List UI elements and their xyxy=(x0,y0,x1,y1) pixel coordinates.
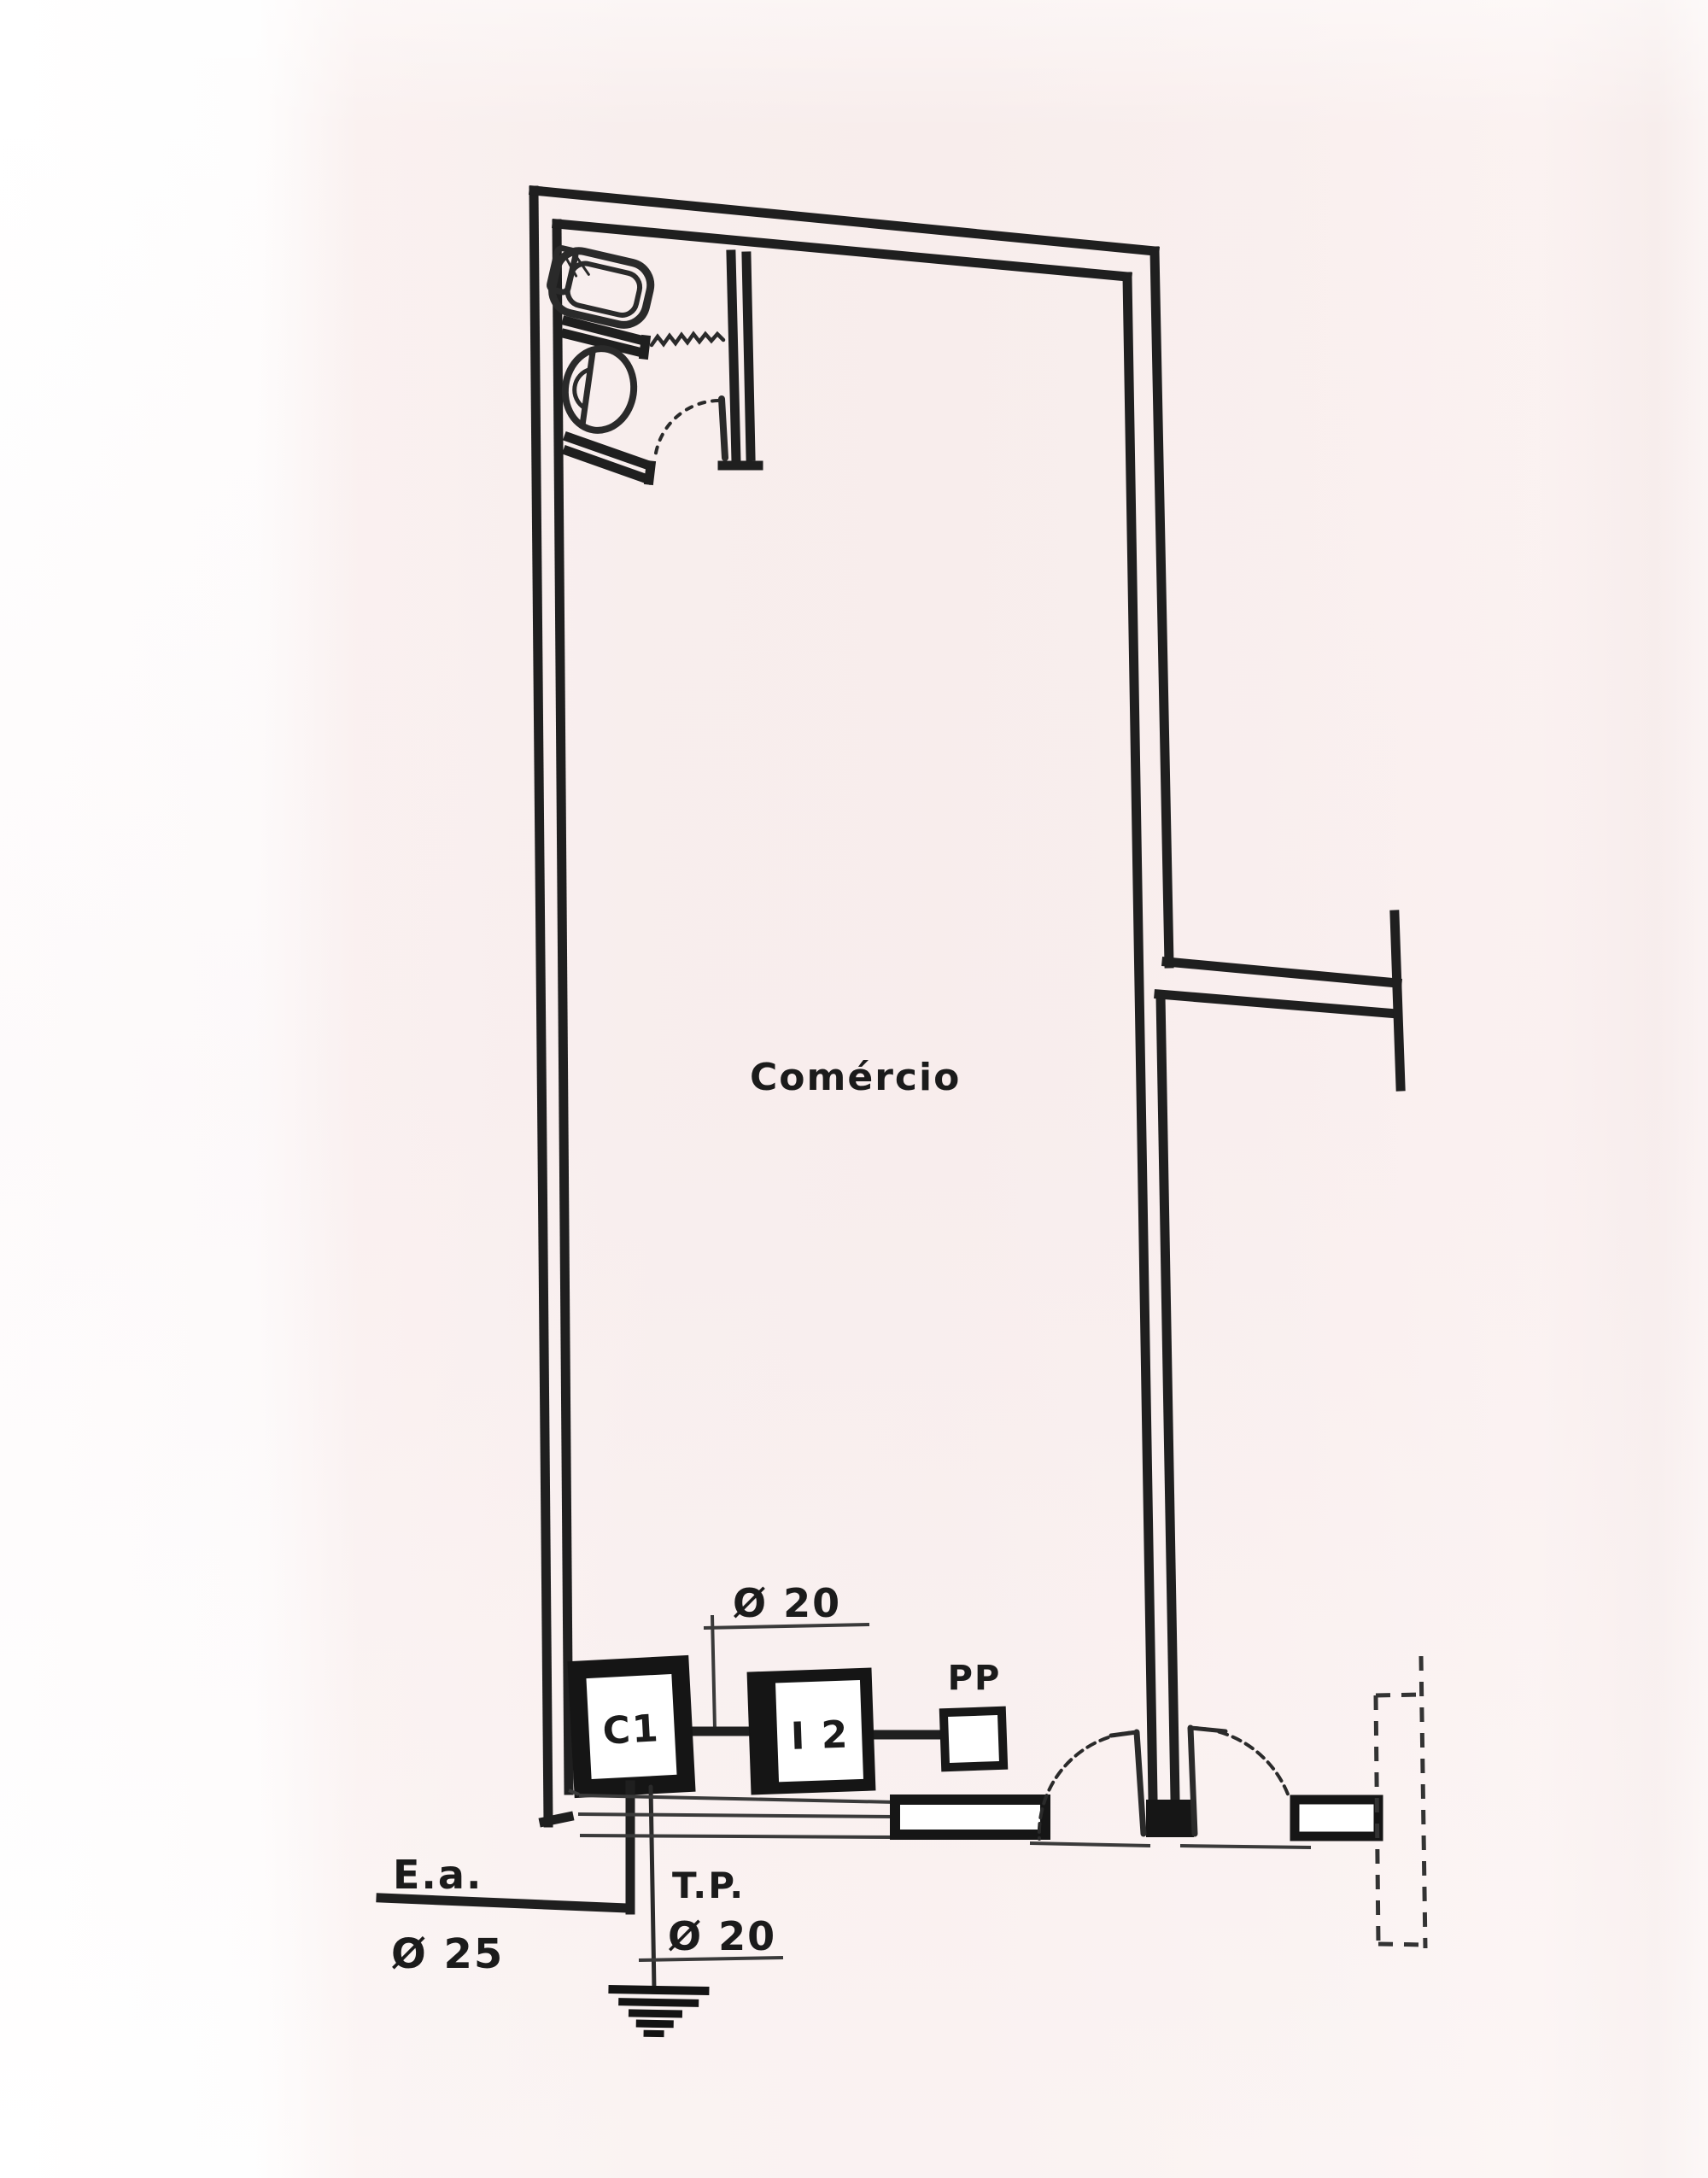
outlet-box-pp-outline xyxy=(944,1711,1003,1767)
right-wall-outer-line-upper xyxy=(1155,251,1169,963)
bathroom-door-leaf xyxy=(722,399,725,458)
right-wall-inner-line xyxy=(1127,277,1153,1799)
entry-door-left xyxy=(1039,1732,1144,1839)
shower-curtain-zigzag xyxy=(652,334,723,345)
toilet xyxy=(560,344,640,435)
right-stub-end-cap xyxy=(1395,915,1401,1086)
center-door-pier xyxy=(1146,1800,1194,1837)
threshold-line-left xyxy=(1030,1843,1150,1846)
left-wall-inner-line xyxy=(557,224,569,1790)
ground-diameter-underline xyxy=(639,1958,783,1960)
toilet-bowl xyxy=(560,344,640,435)
bathroom xyxy=(544,246,758,480)
storefront-glazing-line-3 xyxy=(580,1835,895,1837)
threshold-line-right xyxy=(1180,1846,1311,1847)
entry-door-left-leaf xyxy=(1137,1732,1144,1834)
outlet-box-pp xyxy=(944,1711,1003,1767)
room-label: Comércio xyxy=(750,1056,961,1099)
ground-bar-3 xyxy=(629,2009,682,2017)
outlet-box-pp-label: PP xyxy=(948,1659,1002,1698)
bathroom-right-wall-line-b xyxy=(746,256,751,456)
meter-box-i2-thick-band xyxy=(748,1672,780,1794)
conduit-diameter-label-top: Ø 20 xyxy=(733,1580,841,1626)
entry-door-left-swing-arc xyxy=(1039,1732,1137,1839)
ground-bar-5 xyxy=(643,2030,664,2037)
tub-partition-end-cap xyxy=(644,340,646,354)
entry-door-right xyxy=(1190,1728,1290,1834)
meter-box-i2: I 2 xyxy=(748,1669,870,1795)
right-wall-outer-line-lower xyxy=(1161,996,1175,1799)
toilet-tank-line xyxy=(582,352,593,424)
left-wall-bottom-cap xyxy=(544,1817,569,1822)
left-wall-outer-line xyxy=(534,190,548,1823)
bathtub-basin xyxy=(564,261,642,318)
dashed-outline-top-edge xyxy=(1376,1695,1422,1695)
panel-box-c1-label: C1 xyxy=(601,1707,660,1753)
bathroom-bottom-wall-end-cap xyxy=(649,465,651,480)
ground-bar-2 xyxy=(618,1998,699,2007)
bathroom-door-swing-arc xyxy=(655,401,718,459)
dashed-outline-bottom-edge xyxy=(1378,1944,1427,1945)
dashed-outline-right-edge xyxy=(1421,1656,1425,1948)
entry-door-right-leaf xyxy=(1190,1728,1195,1834)
dimension-leader-line xyxy=(712,1615,715,1729)
service-entrance-diameter-label: Ø 25 xyxy=(391,1930,504,1978)
display-counter-right xyxy=(1295,1800,1378,1836)
bathroom-right-wall-line-a xyxy=(731,255,736,461)
top-wall-outer-line xyxy=(534,190,1155,251)
right-stub-wall-top xyxy=(1167,962,1397,983)
panel-box-c1: C1 xyxy=(576,1665,686,1789)
ground-diameter-label: Ø 20 xyxy=(668,1913,776,1959)
ground-bar-4 xyxy=(636,2020,674,2029)
scanned-floor-plan-page: Comércio Ø 20 C1 I 2 PP E.a. Ø 25 xyxy=(0,0,1708,2178)
display-counter-left xyxy=(895,1800,1045,1835)
service-entrance-label: E.a. xyxy=(393,1852,483,1898)
service-entrance-conduit xyxy=(381,1898,628,1908)
meter-box-i2-label: I 2 xyxy=(790,1713,850,1758)
ground-label: T.P. xyxy=(672,1865,745,1906)
floor-plan-drawing: Comércio Ø 20 C1 I 2 PP E.a. Ø 25 xyxy=(0,0,1708,2178)
ground-bar-1 xyxy=(608,1985,709,1995)
right-stub-wall-bottom xyxy=(1159,994,1397,1014)
dashed-outline-right xyxy=(1376,1656,1427,1948)
ground-symbol xyxy=(608,1985,710,2038)
entry-door-right-swing-arc xyxy=(1190,1728,1290,1799)
